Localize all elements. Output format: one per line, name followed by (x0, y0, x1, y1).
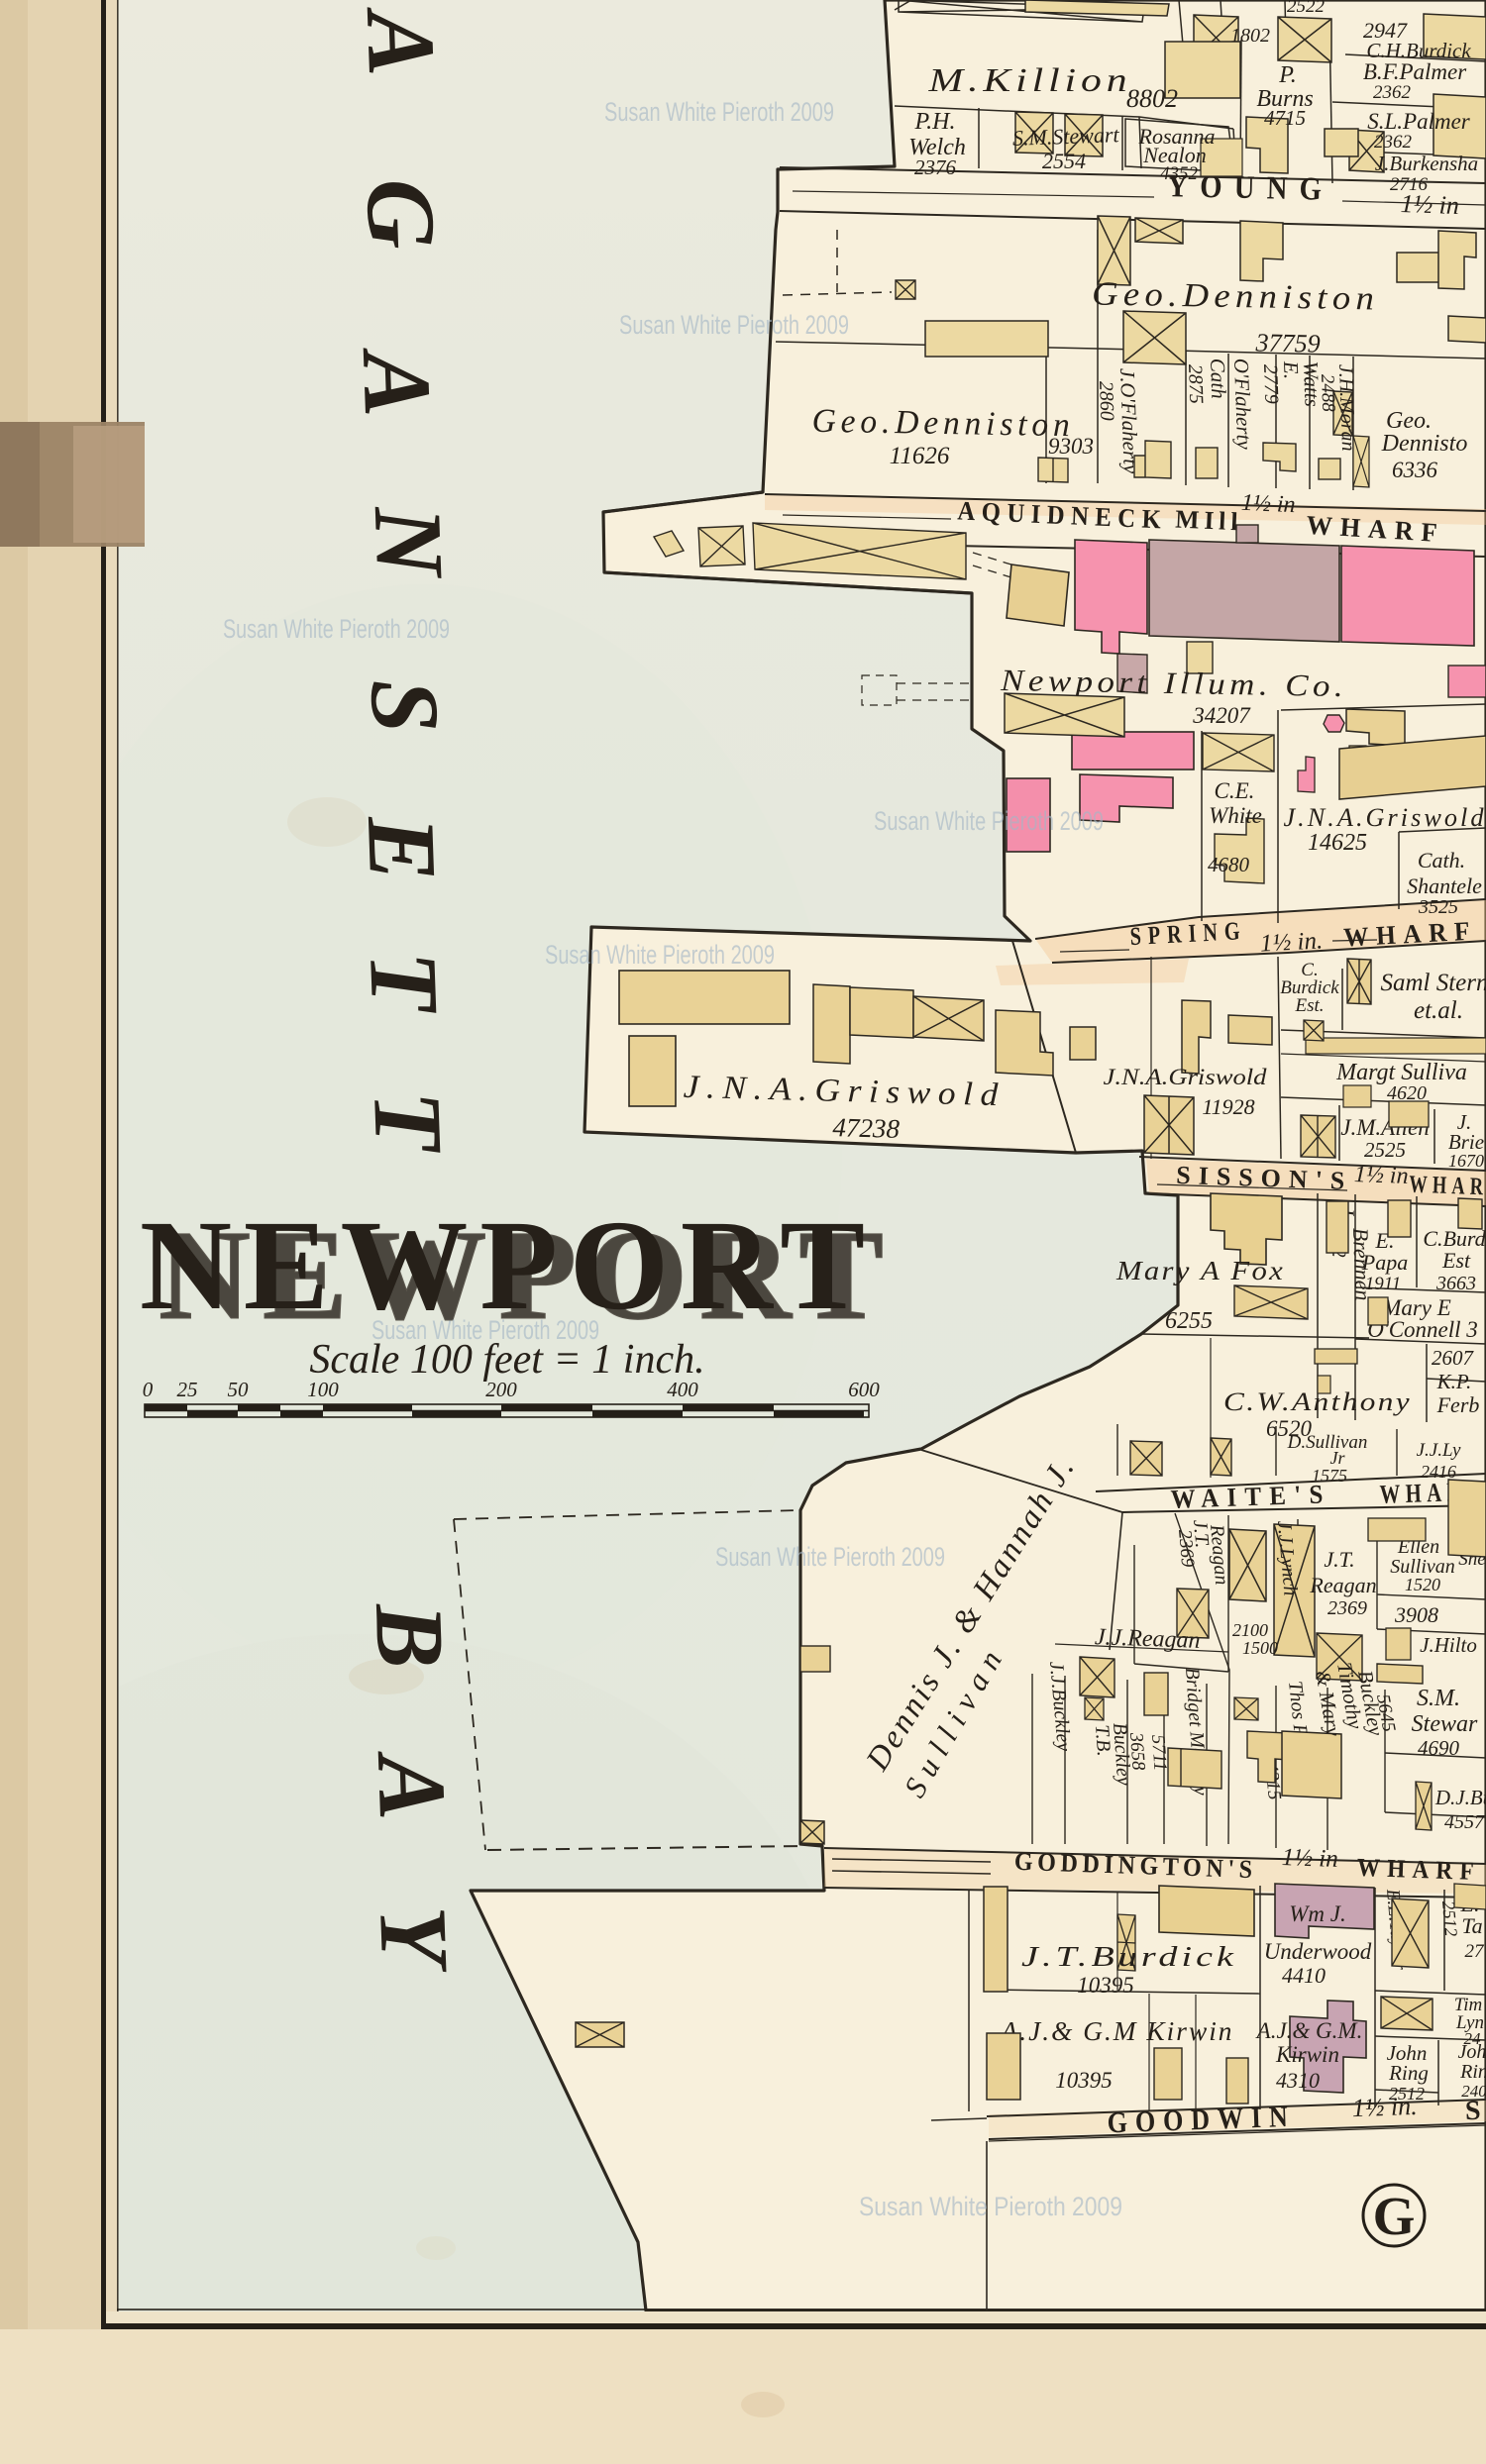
svg-text:2416: 2416 (1421, 1462, 1456, 1482)
svg-text:1575: 1575 (1312, 1466, 1347, 1486)
svg-text:J.J.Reagan: J.J.Reagan (1095, 1624, 1201, 1654)
svg-text:Susan White Pieroth 2009: Susan White Pieroth 2009 (874, 806, 1104, 836)
svg-text:T: T (353, 1089, 462, 1157)
svg-text:8802: 8802 (1126, 84, 1178, 113)
svg-text:1½ in: 1½ in (1240, 490, 1296, 518)
svg-text:2362: 2362 (1374, 132, 1413, 153)
svg-text:2512: 2512 (1389, 2084, 1425, 2104)
svg-text:J.Hilto: J.Hilto (1420, 1633, 1477, 1657)
svg-text:SISSON'S: SISSON'S (1176, 1161, 1353, 1195)
svg-text:3525: 3525 (1418, 896, 1458, 918)
svg-text:2376: 2376 (914, 155, 957, 179)
svg-text:S: S (350, 677, 459, 735)
svg-text:White: White (1209, 803, 1262, 828)
svg-text:1500: 1500 (1242, 1638, 1278, 1658)
svg-text:1911: 1911 (1365, 1274, 1402, 1294)
svg-text:T: T (349, 950, 458, 1017)
svg-text:Geo.Denniston: Geo.Denniston (1092, 275, 1380, 317)
svg-text:J.T.Burdick: J.T.Burdick (1021, 1942, 1237, 1973)
svg-text:A.J.& G.M Kirwin: A.J.& G.M Kirwin (999, 2016, 1233, 2046)
svg-text:4680: 4680 (1208, 853, 1250, 876)
svg-text:10395: 10395 (1077, 1973, 1134, 1998)
svg-text:Shantele: Shantele (1407, 873, 1482, 898)
svg-text:WHAR: WHAR (1409, 1172, 1486, 1201)
svg-text:4557: 4557 (1444, 1811, 1485, 1833)
svg-text:A: A (357, 1747, 466, 1821)
svg-text:S.M.Stewart: S.M.Stewart (1012, 122, 1120, 151)
svg-text:6336: 6336 (1392, 458, 1438, 482)
svg-text:1802: 1802 (1230, 25, 1270, 47)
svg-text:3658: 3658 (1125, 1731, 1149, 1772)
svg-text:S.L.Palmer: S.L.Palmer (1367, 109, 1471, 134)
svg-text:240: 240 (1461, 2082, 1486, 2101)
svg-text:Est.: Est. (1294, 995, 1324, 1016)
svg-text:2488: 2488 (1317, 373, 1338, 412)
svg-text:3663: 3663 (1435, 1273, 1476, 1294)
svg-text:0: 0 (143, 1378, 154, 1401)
svg-text:K.P.: K.P. (1436, 1370, 1472, 1393)
svg-text:Dennisto: Dennisto (1381, 431, 1468, 457)
svg-text:E: E (347, 813, 456, 882)
svg-text:400: 400 (667, 1378, 698, 1401)
svg-text:5711: 5711 (1147, 1734, 1171, 1772)
svg-text:Ta: Ta (1461, 1913, 1482, 1938)
svg-text:Est: Est (1441, 1248, 1471, 1273)
svg-text:S.M.: S.M. (1417, 1686, 1460, 1711)
svg-text:1½ in: 1½ in (1353, 1162, 1409, 1189)
svg-text:J.J.Ly: J.J.Ly (1417, 1440, 1461, 1461)
svg-text:11626: 11626 (890, 443, 950, 469)
svg-text:N: N (354, 504, 464, 582)
svg-text:Stewar: Stewar (1412, 1711, 1478, 1737)
svg-text:Saml Stern: Saml Stern (1380, 970, 1486, 996)
svg-text:Cath: Cath (1206, 358, 1230, 399)
svg-text:Ring: Ring (1388, 2061, 1429, 2085)
svg-text:B: B (355, 1600, 464, 1670)
svg-text:6255: 6255 (1165, 1308, 1213, 1334)
svg-text:Susan White Pieroth 2009: Susan White Pieroth 2009 (545, 940, 775, 970)
svg-text:SPRING: SPRING (1129, 916, 1247, 951)
svg-text:2779: 2779 (1259, 363, 1282, 404)
svg-text:2525: 2525 (1364, 1138, 1406, 1162)
svg-text:4410: 4410 (1282, 1963, 1326, 1988)
svg-text:2860: 2860 (1095, 380, 1117, 421)
svg-text:G: G (346, 177, 455, 252)
svg-text:Reagan: Reagan (1309, 1573, 1376, 1597)
svg-text:D.Sullivan: D.Sullivan (1287, 1432, 1368, 1453)
svg-text:J.N.A.Griswold: J.N.A.Griswold (1104, 1065, 1268, 1089)
svg-text:Susan White Pieroth 2009: Susan White Pieroth 2009 (715, 1542, 945, 1572)
svg-text:WHARF: WHARF (1356, 1853, 1481, 1886)
svg-text:D.J.Bu: D.J.Bu (1434, 1786, 1486, 1809)
svg-text:M.Killion: M.Killion (927, 62, 1131, 99)
svg-text:Underwood: Underwood (1264, 1939, 1372, 1964)
svg-text:9303: 9303 (1048, 434, 1094, 459)
svg-text:2716: 2716 (1390, 174, 1429, 195)
svg-text:P.: P. (1278, 62, 1297, 88)
svg-text:Wm J.: Wm J. (1289, 1901, 1345, 1926)
svg-text:Susan White Pieroth 2009: Susan White Pieroth 2009 (223, 614, 450, 644)
svg-text:1520: 1520 (1405, 1575, 1440, 1594)
svg-text:2522: 2522 (1287, 0, 1326, 17)
svg-text:G: G (1373, 2186, 1416, 2246)
svg-text:2369: 2369 (1174, 1529, 1198, 1569)
svg-text:200: 200 (485, 1378, 517, 1401)
svg-text:50: 50 (228, 1378, 250, 1401)
svg-text:O'Flaherty: O'Flaherty (1229, 358, 1256, 450)
svg-text:2875: 2875 (1184, 363, 1207, 404)
svg-text:Mary A Fox: Mary A Fox (1115, 1256, 1285, 1285)
svg-text:1670: 1670 (1448, 1151, 1484, 1171)
svg-text:37759: 37759 (1254, 328, 1320, 358)
svg-text:C.W.Anthony: C.W.Anthony (1223, 1387, 1412, 1416)
svg-text:A: A (346, 3, 455, 77)
svg-text:Cath.: Cath. (1418, 848, 1465, 873)
svg-text:2362: 2362 (1373, 82, 1412, 103)
svg-text:Kirwin: Kirwin (1275, 2042, 1339, 2067)
svg-text:2100: 2100 (1232, 1620, 1268, 1640)
svg-text:GOODWIN: GOODWIN (1107, 2101, 1296, 2140)
svg-text:Jr: Jr (1330, 1448, 1346, 1468)
svg-text:et.al.: et.al. (1414, 997, 1463, 1024)
svg-text:J.Burkensha: J.Burkensha (1375, 152, 1478, 175)
svg-text:WAITE'S: WAITE'S (1170, 1479, 1331, 1514)
svg-text:600: 600 (848, 1378, 880, 1401)
svg-text:2369: 2369 (1327, 1597, 1367, 1619)
svg-text:14625: 14625 (1308, 830, 1367, 856)
svg-text:P.H.: P.H. (914, 109, 956, 135)
svg-text:A.J.& G.M.: A.J.& G.M. (1255, 2018, 1363, 2043)
svg-text:J.T.: J.T. (1324, 1547, 1354, 1572)
svg-text:3908: 3908 (1394, 1602, 1438, 1627)
svg-text:B.F.Palmer: B.F.Palmer (1363, 59, 1467, 84)
svg-text:A: A (342, 344, 451, 418)
svg-text:2554: 2554 (1042, 149, 1086, 173)
svg-text:4715: 4715 (1264, 106, 1306, 130)
svg-text:1½ in.: 1½ in. (1259, 927, 1324, 957)
svg-text:27: 27 (1465, 1941, 1486, 1962)
svg-text:2607: 2607 (1432, 1346, 1475, 1370)
svg-text:34207: 34207 (1192, 703, 1251, 728)
svg-text:Susan White Pieroth 2009: Susan White Pieroth 2009 (604, 97, 834, 127)
svg-text:10395: 10395 (1055, 2068, 1113, 2093)
svg-text:Joh: Joh (1458, 2041, 1486, 2063)
svg-text:Susan White Pieroth 2009: Susan White Pieroth 2009 (371, 1315, 599, 1345)
svg-text:11928: 11928 (1202, 1094, 1254, 1119)
svg-text:MIll: MIll (1175, 505, 1243, 537)
svg-text:J.N.A.Griswold: J.N.A.Griswold (1284, 803, 1486, 832)
svg-text:Papa: Papa (1361, 1250, 1408, 1275)
svg-text:Susan White Pieroth 2009: Susan White Pieroth 2009 (619, 310, 849, 340)
svg-text:25: 25 (177, 1378, 198, 1401)
svg-text:47238: 47238 (832, 1112, 901, 1144)
svg-text:4310: 4310 (1276, 2068, 1320, 2093)
svg-text:4352: 4352 (1160, 163, 1199, 184)
svg-text:Geo.Denniston: Geo.Denniston (811, 403, 1075, 445)
svg-text:Susan White Pieroth 2009: Susan White Pieroth 2009 (859, 2192, 1122, 2221)
svg-text:4690: 4690 (1418, 1736, 1460, 1760)
svg-text:Rin: Rin (1459, 2061, 1486, 2083)
svg-text:Ferb: Ferb (1436, 1392, 1480, 1417)
svg-text:C.E.: C.E. (1215, 778, 1255, 803)
svg-text:1½ in: 1½ in (1281, 1844, 1338, 1873)
svg-text:100: 100 (307, 1378, 339, 1401)
